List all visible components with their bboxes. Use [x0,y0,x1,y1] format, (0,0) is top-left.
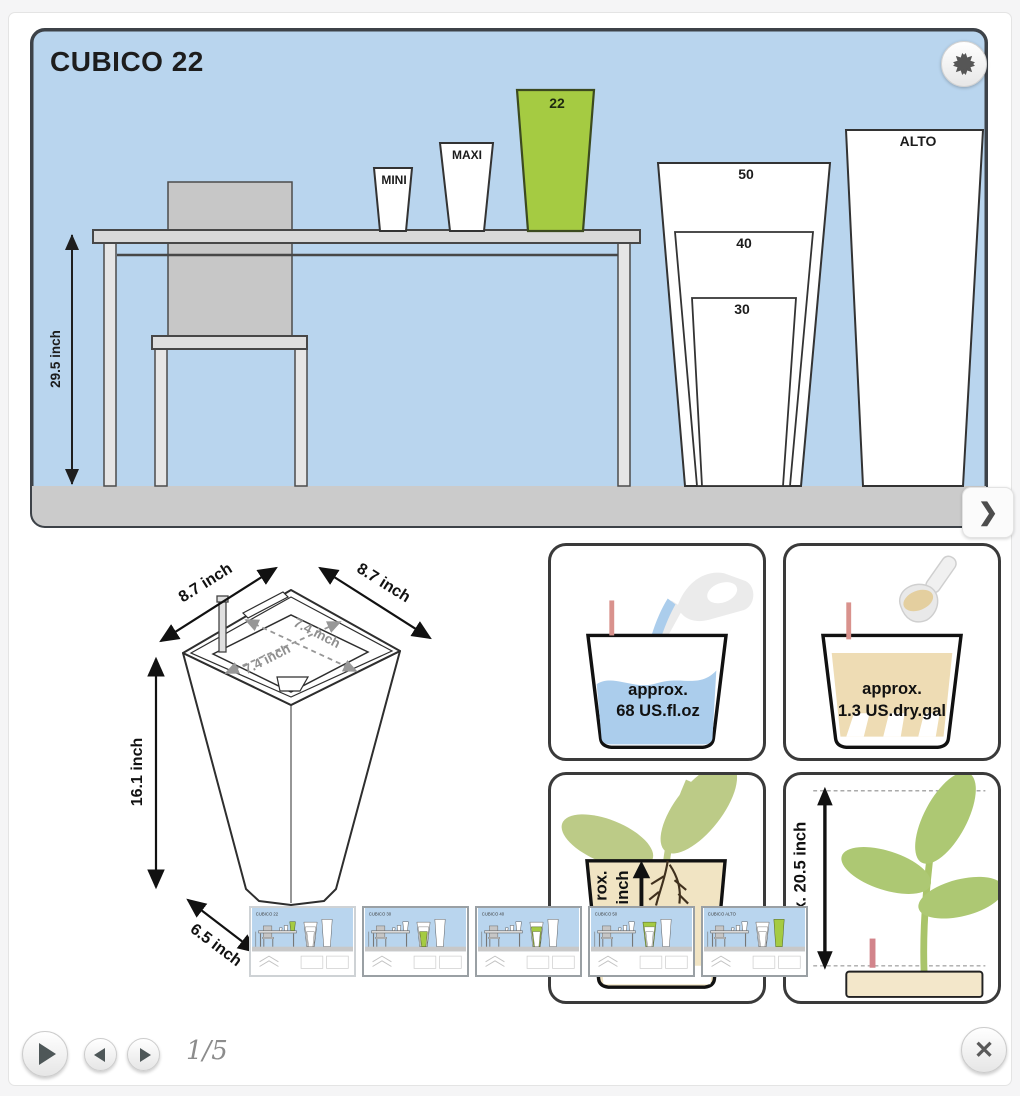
planter-22-highlighted: 22 [517,90,594,231]
planter-alto-label: ALTO [900,133,937,149]
spec-card-water-capacity: approx. 68 US.fl.oz [548,543,766,761]
expand-button[interactable] [941,41,987,87]
soil-capacity-line2: 1.3 US.dry.gal [838,701,946,720]
planter-50-40-30-nested: 50 40 30 [658,163,830,486]
thumbnail-3-title: CUBICO 40 [482,912,505,917]
soil-bar [846,972,982,997]
water-indicator-icon [870,939,876,968]
thumbnail-4[interactable]: CUBICO 50 [588,906,695,977]
prev-button[interactable] [84,1038,117,1071]
close-icon: ✕ [974,1036,994,1065]
max-plant-height-icon: max. 20.5 inch [786,775,998,1001]
thumbnail-2[interactable]: CUBICO 30 [362,906,469,977]
thumbnail-5[interactable]: CUBICO ALTO [701,906,808,977]
planter-30-label: 30 [734,301,750,317]
soil-capacity-icon: approx. 1.3 US.dry.gal [786,546,998,758]
planter-maxi: MAXI [440,143,493,231]
table-height-label: 29.5 inch [48,330,63,388]
water-indicator-icon [846,602,851,639]
triangle-right-icon [140,1048,151,1062]
play-button[interactable] [22,1031,68,1077]
planter-mini-label: MINI [381,173,406,187]
thumbnail-1-title: CUBICO 22 [256,912,279,917]
dim-height: 16.1 inch [129,738,146,806]
play-icon [39,1043,56,1065]
scoop-icon [900,554,959,622]
next-button[interactable] [127,1038,160,1071]
chevron-right-icon: ❯ [978,501,998,525]
lightbox-page: 29.5 inch [0,0,1020,1096]
plant-icon [836,775,998,972]
planter-alto: ALTO [846,130,983,486]
planter-with-soil [823,602,961,747]
floor [32,486,986,528]
planter-50-label: 50 [738,166,754,182]
planter-body [183,590,400,905]
dim-top-depth: 8.7 inch [354,560,414,606]
close-button[interactable]: ✕ [961,1027,1007,1073]
spec-card-max-plant-height: max. 20.5 inch [783,772,1001,1004]
thumbnail-4-title: CUBICO 50 [595,912,618,917]
water-indicator-icon [609,600,614,635]
size-comparison-graphic: 29.5 inch [30,28,988,528]
water-capacity-line1: approx. [628,680,688,699]
triangle-left-icon [94,1048,105,1062]
soil-capacity-line1: approx. [862,679,922,698]
thumbnail-3[interactable]: CUBICO 40 [475,906,582,977]
thumbnail-2-title: CUBICO 30 [369,912,392,917]
height-arrow [817,787,833,970]
expand-arrows-icon [949,49,979,79]
planter-mini: MINI [374,168,412,231]
water-capacity-icon: approx. 68 US.fl.oz [551,546,763,758]
page-indicator: 1/5 [186,1036,228,1066]
depth-label-fragment2: inch [613,870,632,904]
planter-maxi-label: MAXI [452,148,482,162]
depth-label-fragment1: rox. [591,870,610,900]
spec-card-soil-capacity: approx. 1.3 US.dry.gal [783,543,1001,761]
dim-base-width: 6.5 inch [187,921,245,970]
slide-size-comparison: 29.5 inch [30,28,988,528]
planter-22-label: 22 [549,95,565,111]
thumbnail-1[interactable]: CUBICO 22 [249,906,356,977]
planter-40-label: 40 [736,235,752,251]
next-slide-tab[interactable]: ❯ [962,487,1014,538]
water-capacity-line2: 68 US.fl.oz [616,701,700,720]
thumbnail-5-title: CUBICO ALTO [708,912,737,917]
slide-title: CUBICO 22 [50,46,204,77]
